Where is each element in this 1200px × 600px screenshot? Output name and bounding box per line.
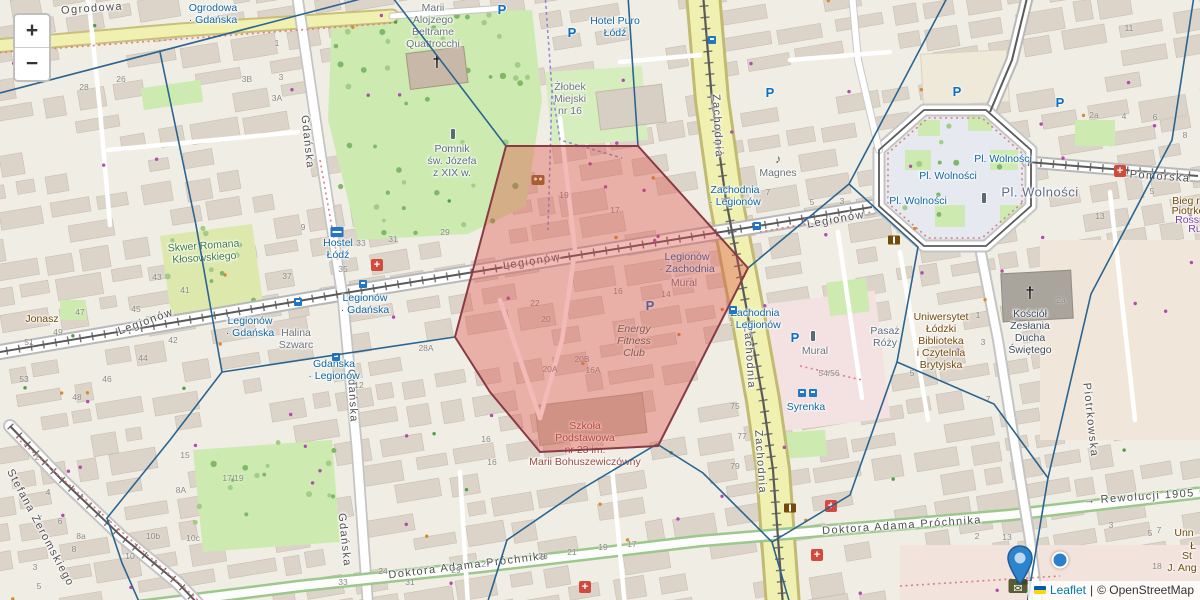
openstreetmap-link[interactable]: © OpenStreetMap: [1097, 583, 1194, 597]
map-viewport[interactable]: OgrodowaGdańskaGdańskaGdańskaZachodniaZa…: [0, 0, 1200, 600]
leaflet-link[interactable]: Leaflet: [1050, 583, 1086, 597]
map-marker[interactable]: [1007, 545, 1033, 585]
zoom-control: + −: [13, 13, 51, 82]
base-map: [0, 0, 1200, 600]
attribution-bar: Leaflet | © OpenStreetMap: [1028, 581, 1200, 600]
zoom-out-button[interactable]: −: [15, 48, 49, 80]
ukraine-flag-icon: [1034, 586, 1046, 594]
attribution-separator: |: [1090, 583, 1093, 597]
zoom-in-button[interactable]: +: [15, 15, 49, 48]
